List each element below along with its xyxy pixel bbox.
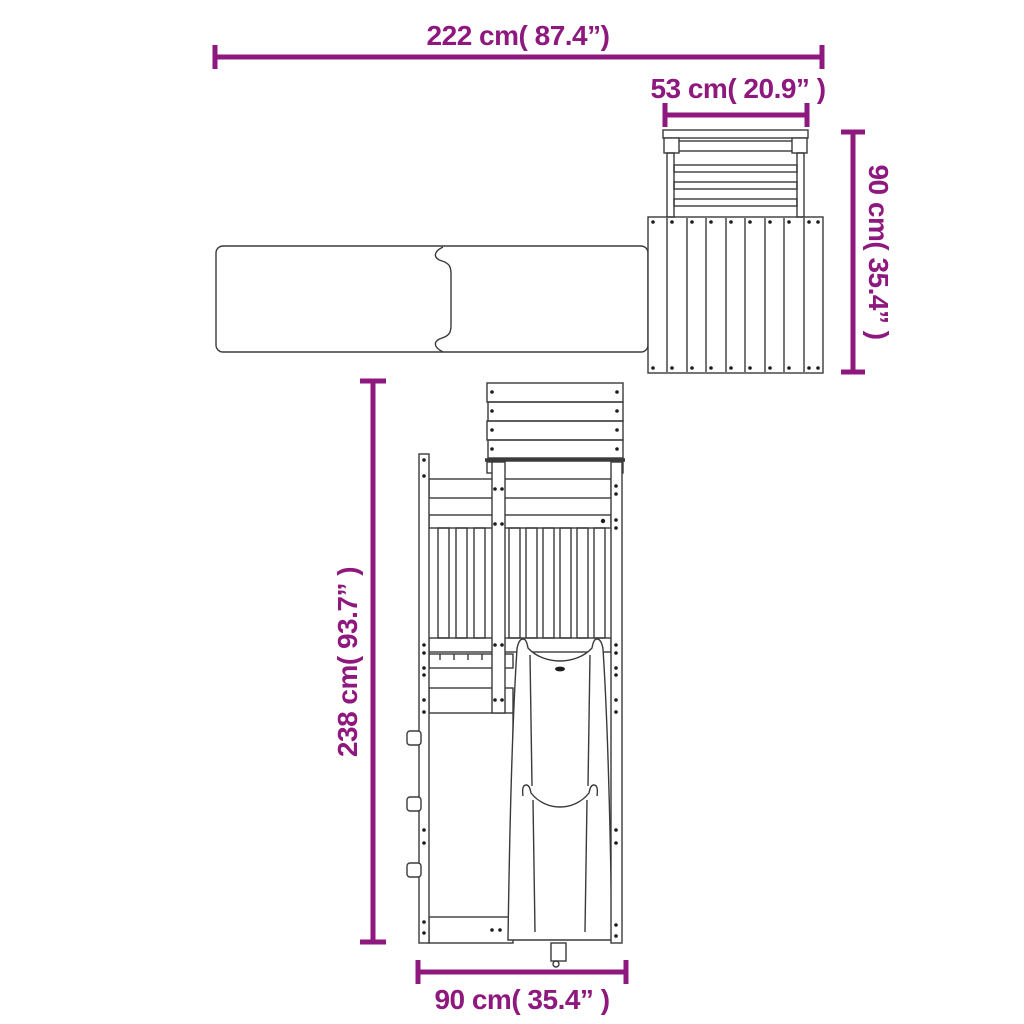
ladder-width-label: 53 cm( 20.9” ) <box>650 73 825 104</box>
railing-right-post <box>797 153 804 217</box>
railing-rungs <box>674 165 797 206</box>
platform-outline <box>648 217 823 373</box>
slide-foot <box>551 943 566 961</box>
slide-top-view <box>216 246 648 352</box>
front-view <box>407 383 625 967</box>
platform-height-label: 90 cm( 35.4” ) <box>863 164 894 339</box>
middle-post <box>492 462 505 713</box>
platform-top-view <box>648 217 823 373</box>
dimension-ladder-width: 53 cm( 20.9” ) <box>650 73 825 127</box>
railing-left-post <box>667 153 674 217</box>
railing-right-block <box>792 138 807 153</box>
roof-front-view <box>485 383 625 473</box>
dimension-total-width: 222 cm( 87.4”) <box>215 20 822 69</box>
product-dimension-diagram: 222 cm( 87.4”) 53 cm( 20.9” ) 90 cm( 35.… <box>0 0 1024 1024</box>
sandbox-bay <box>429 688 513 943</box>
slide-foot-cap <box>553 961 559 967</box>
slide-front-outline <box>508 639 612 940</box>
dimension-platform-height: 90 cm( 35.4” ) <box>841 132 894 372</box>
slide-top-wave <box>435 247 451 352</box>
balusters-right-bay <box>509 528 605 638</box>
top-view <box>216 130 823 373</box>
slide-top-outline <box>216 246 648 352</box>
slide-front-view <box>508 639 612 967</box>
dimension-total-height: 238 cm( 93.7” ) <box>332 381 386 942</box>
right-post <box>611 462 622 943</box>
upper-rail <box>429 479 611 498</box>
total-width-label: 222 cm( 87.4”) <box>427 20 610 51</box>
diagram-canvas: 222 cm( 87.4”) 53 cm( 20.9” ) 90 cm( 35.… <box>0 0 1024 1024</box>
total-height-label: 238 cm( 93.7” ) <box>332 567 363 757</box>
railing-top-plank <box>663 130 808 138</box>
railing-top-bar <box>678 141 794 151</box>
balusters-left-bay <box>438 528 485 638</box>
middle-rail <box>429 515 611 528</box>
railing-top-view <box>663 130 808 217</box>
dimension-base-width: 90 cm( 35.4” ) <box>418 960 626 1015</box>
base-width-label: 90 cm( 35.4” ) <box>434 984 609 1015</box>
slide-logo-mark <box>555 667 565 672</box>
railing-left-block <box>664 138 679 153</box>
